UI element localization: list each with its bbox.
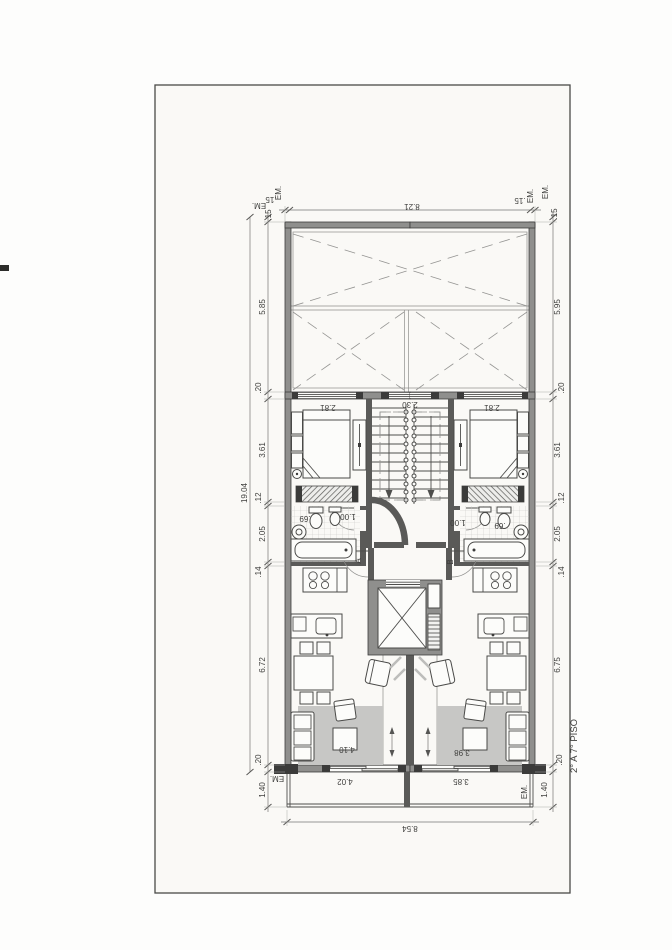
dim-right-void: 5.95 [553,299,562,315]
dim-left-wall-b: .12 [254,492,263,504]
dim-left-wall-c: .14 [254,566,263,578]
dim-right-end: .15 [550,208,559,220]
floor-plan-drawing: EM. .15 EM. .15 8.21 .15 EM. EM. .15 5.8… [0,0,672,950]
balcony-divider [404,772,410,807]
label-unit-a: A [354,558,363,564]
label-bath-left: .69 [299,514,311,523]
dim-top-total: 8.21 [404,202,420,211]
dim-em-bottom-left: EM. [270,774,284,783]
label-hall-right: 1.00 [450,518,466,527]
dim-em-top-right: EM. [526,189,535,203]
dim-right-wall-b: .12 [557,492,566,504]
scan-artifact [0,265,9,271]
dim-left-balcony: 1.40 [258,782,267,798]
label-bedroom-left: 2.81 [320,403,336,412]
dim-left-bath: 2.05 [258,526,267,542]
label-hall-left: 1.00 [340,512,356,521]
dim-left-void: 5.85 [258,299,267,315]
shaft-closet [428,584,440,608]
dim-em-chain-left: EM. [252,201,266,210]
dim-right-wall-c: .14 [557,566,566,578]
dim-right-bedroom: 3.61 [553,442,562,458]
scanned-floor-plan-page: EM. .15 EM. .15 8.21 .15 EM. EM. .15 5.8… [0,0,672,950]
dim-left-wall-a: .20 [254,382,263,394]
dim-right-bath: 2.05 [553,526,562,542]
label-balcony-left: 4.02 [337,777,353,786]
dim-left-bedroom: 3.61 [258,442,267,458]
label-balcony-right: 3.85 [453,777,469,786]
dim-left-wall-d: .20 [254,754,263,766]
dim-right-balcony: 1.40 [540,782,549,798]
dim-top-right-end: .15 [514,196,526,205]
label-stair-width: 2.30 [402,400,418,409]
elevator-door [386,580,420,587]
plan-title: 2° A 7° PISO [569,719,580,773]
label-living-right: 3.98 [454,748,470,757]
label-living-left: 4.10 [339,745,355,754]
dim-right-wall-a: .20 [557,382,566,394]
label-bath-right: .69 [494,521,506,530]
dim-right-living: 6.75 [553,657,562,673]
label-bedroom-right: 2.81 [484,403,500,412]
elevator [368,580,442,655]
duct [428,614,440,650]
dim-em-bottom-right: EM. [520,785,529,799]
dim-bottom-total: 8.54 [402,824,418,833]
dim-right-wall-d: .20 [555,754,564,766]
dim-overall-depth: 19.04 [240,482,249,503]
label-unit-b: B [446,559,455,564]
dim-left-living: 6.72 [258,657,267,673]
dim-left-end: .15 [264,209,273,221]
dim-em-chain-right: EM. [541,185,550,199]
